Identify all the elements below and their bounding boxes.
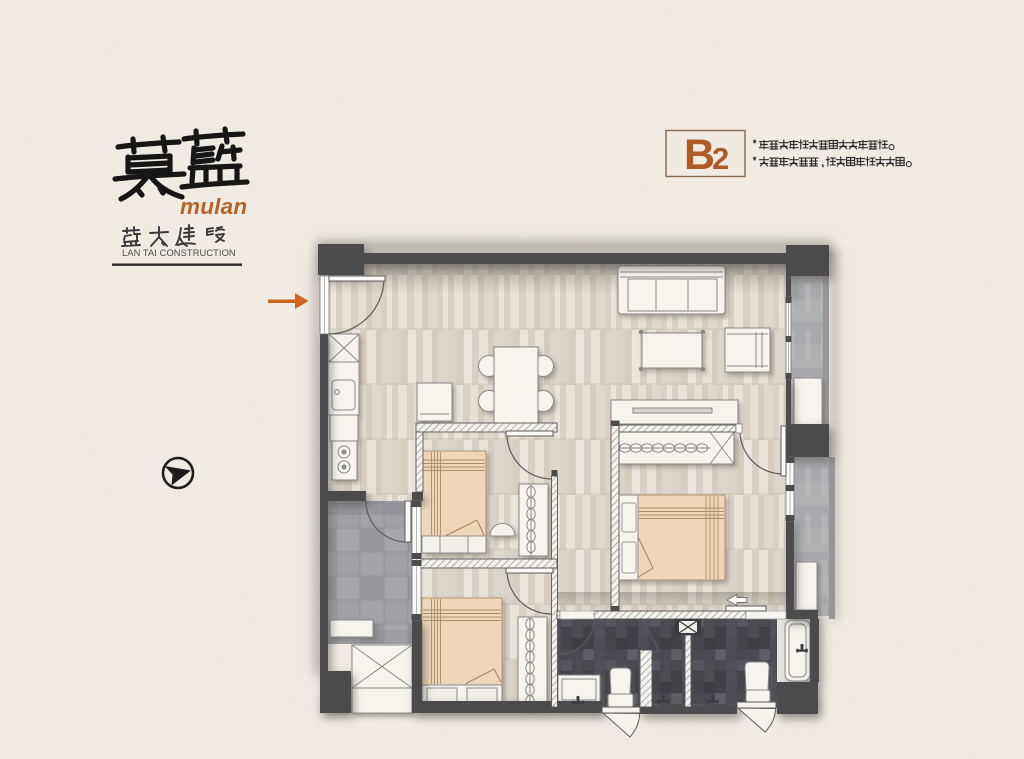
svg-text:LAN TAI CONSTRUCTION: LAN TAI CONSTRUCTION: [122, 248, 236, 258]
svg-text:2: 2: [712, 141, 729, 176]
svg-text:mulan: mulan: [180, 194, 247, 219]
svg-text:B: B: [684, 131, 715, 179]
